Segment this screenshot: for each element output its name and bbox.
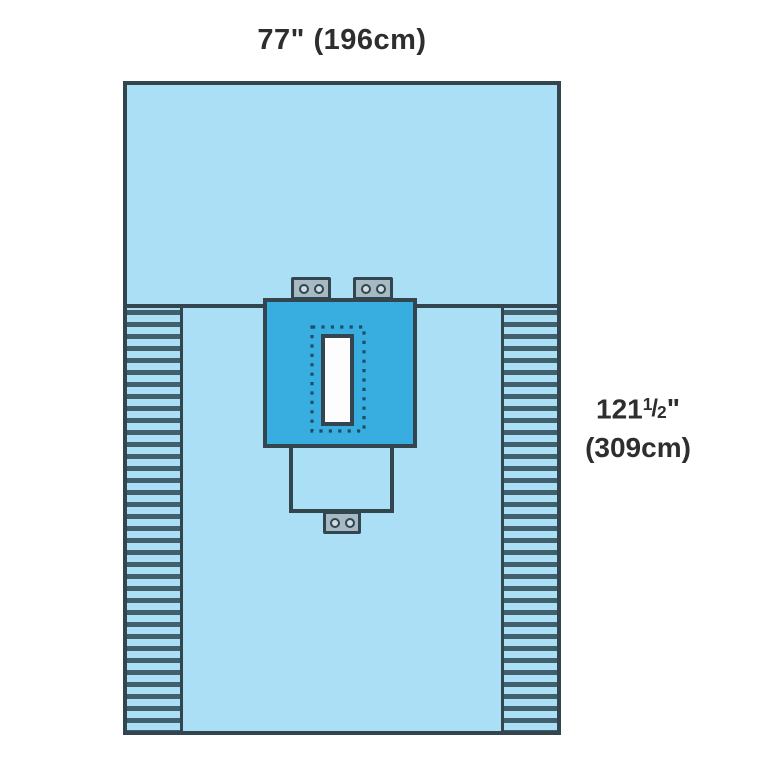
tab-hole	[299, 284, 309, 294]
tab-hole	[330, 518, 340, 528]
pleat-panel-right	[501, 308, 557, 731]
tab-hole	[345, 518, 355, 528]
reinforcement-panel	[263, 298, 417, 448]
height-inch-mark: "	[667, 393, 680, 424]
tab-hole	[314, 284, 324, 294]
height-whole: 121	[596, 393, 643, 424]
height-dimension-label: 1211/2" (309cm)	[563, 386, 713, 466]
fenestration-opening	[321, 334, 354, 426]
height-fraction-denominator: 2	[657, 402, 667, 422]
fastener-tab-bottom	[323, 511, 361, 534]
width-dimension-label: 77" (196cm)	[123, 24, 561, 57]
tab-hole	[361, 284, 371, 294]
height-dimension-inches: 1211/2"	[563, 386, 713, 430]
pleat-panel-left	[127, 308, 183, 731]
fastener-tab-top-left	[291, 277, 331, 300]
height-dimension-cm: (309cm)	[563, 430, 713, 466]
fastener-tab-top-right	[353, 277, 393, 300]
drape-sheet	[123, 81, 561, 735]
tab-hole	[376, 284, 386, 294]
drape-diagram: 77" (196cm) 1211/2" (309cm)	[0, 0, 780, 780]
pouch-outline	[289, 448, 394, 513]
